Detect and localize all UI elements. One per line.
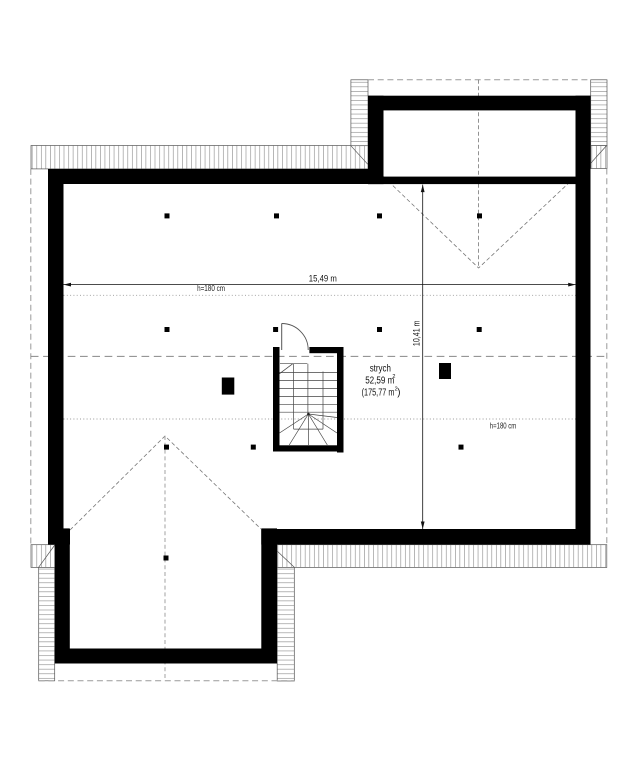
svg-text:h=180 cm: h=180 cm [197, 284, 225, 293]
svg-text:15,49 m: 15,49 m [309, 273, 337, 284]
svg-text:): ) [397, 387, 400, 398]
svg-text:52,59 m: 52,59 m [365, 376, 394, 387]
svg-text:10,41 m: 10,41 m [411, 320, 422, 346]
svg-text:h=180 cm: h=180 cm [490, 422, 517, 431]
svg-text:(175,77 m: (175,77 m [362, 387, 395, 398]
svg-text:2: 2 [392, 374, 395, 380]
svg-text:strych: strych [370, 363, 391, 374]
